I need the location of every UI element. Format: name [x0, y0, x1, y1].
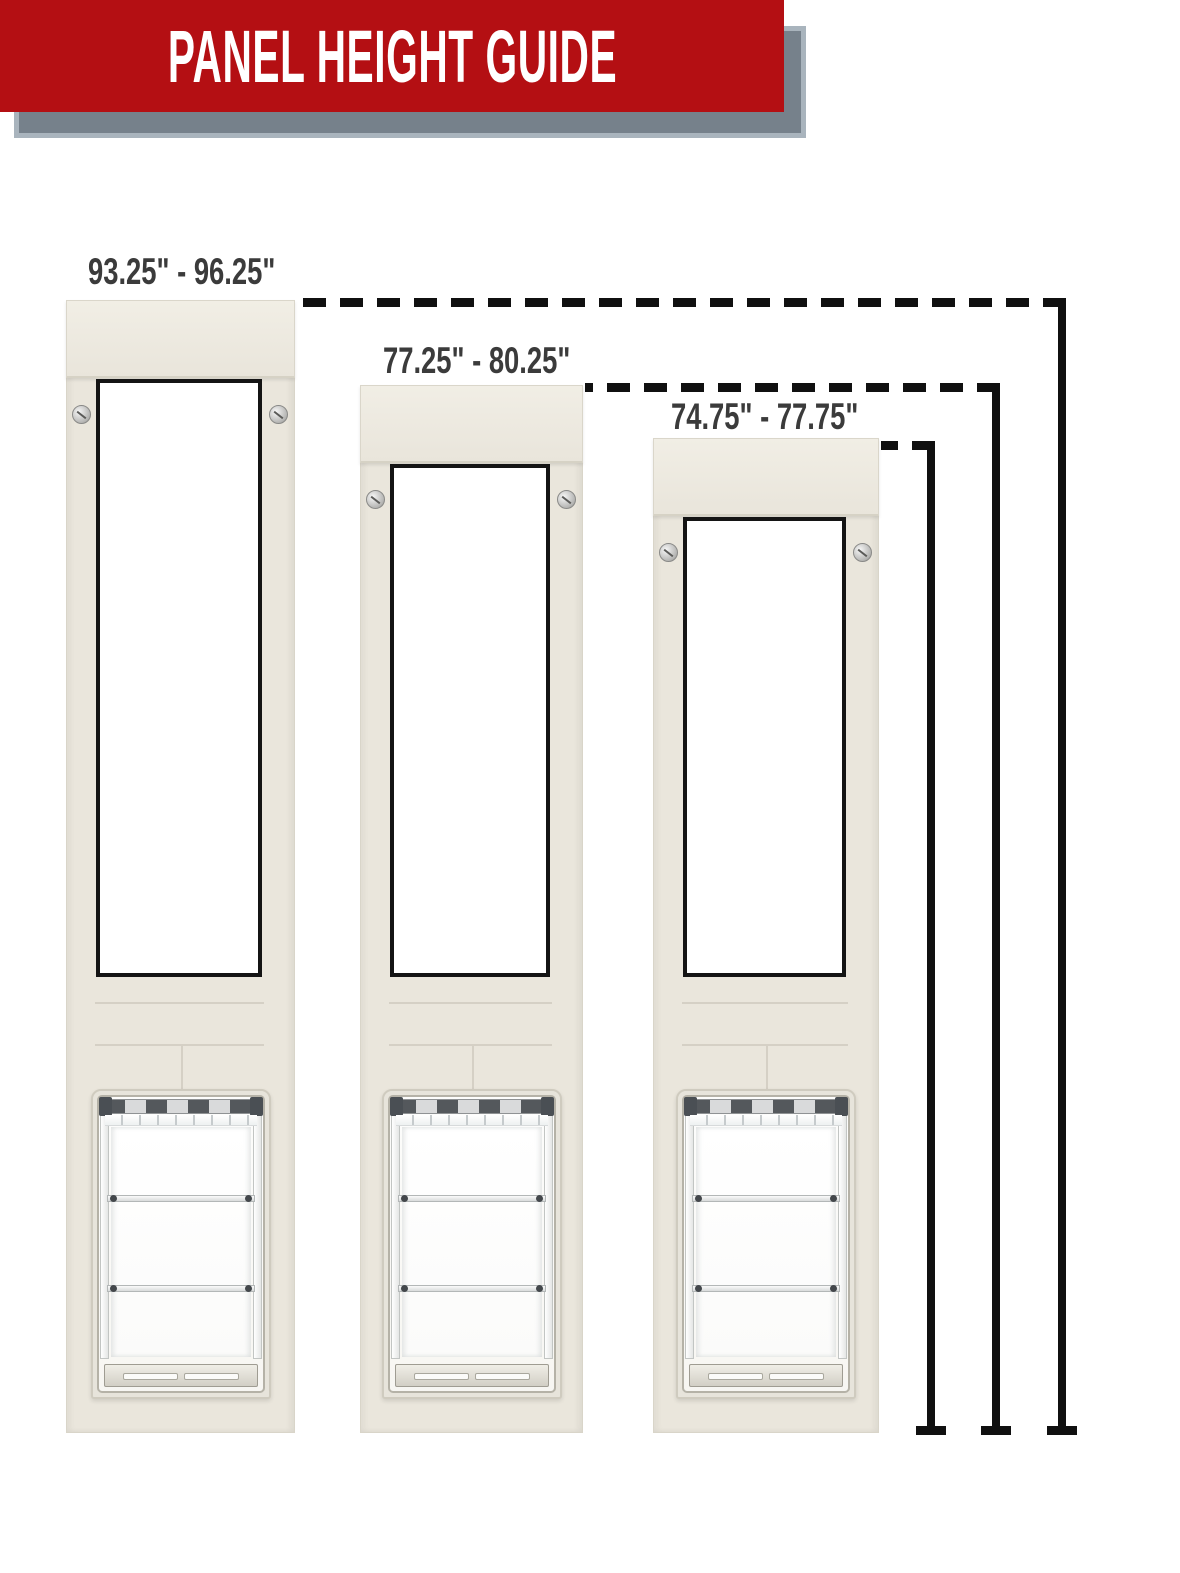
screw-icon: [853, 543, 872, 562]
panel-seam: [181, 1046, 183, 1089]
height-range-label-short: 74.75" - 77.75": [671, 396, 858, 438]
threshold-slot: [123, 1373, 178, 1380]
screw-icon: [557, 490, 576, 509]
panel-seam: [682, 1002, 848, 1004]
flap-hinge-end-cap: [99, 1097, 112, 1116]
screw-icon: [269, 405, 288, 424]
flap-crossbar: [398, 1285, 546, 1292]
title-banner: PANEL HEIGHT GUIDE: [0, 0, 784, 112]
panel-top-cap: [66, 300, 295, 378]
panel-seam: [682, 1044, 848, 1046]
flap-threshold: [689, 1364, 843, 1387]
panel-seam: [766, 1046, 768, 1089]
panel-top-cap: [360, 385, 583, 463]
height-range-label-medium: 77.25" - 80.25": [383, 340, 570, 382]
flap-threshold: [395, 1364, 549, 1387]
extent-line-tall: [1058, 298, 1066, 1435]
flap-crossbar: [692, 1285, 840, 1292]
flap-side-rail: [253, 1099, 262, 1359]
flap-threshold: [104, 1364, 258, 1387]
flap-crossbar: [107, 1285, 255, 1292]
flap-clip-strip: [690, 1115, 842, 1126]
flap-crossbar: [398, 1195, 546, 1202]
threshold-slot: [708, 1373, 763, 1380]
panel-seam: [472, 1046, 474, 1089]
sliding-door-panel-medium: [360, 385, 583, 1433]
height-range-label-tall: 93.25" - 96.25": [88, 251, 275, 293]
flap-hinge-bar: [688, 1099, 844, 1114]
flap-side-rail: [100, 1099, 109, 1359]
flap-crossbar: [107, 1195, 255, 1202]
extent-line-end-cap-medium: [981, 1426, 1011, 1435]
flap-crossbar: [692, 1195, 840, 1202]
flap-hinge-end-cap: [541, 1097, 554, 1116]
flap-door: [696, 1127, 836, 1357]
flap-hinge-end-cap: [835, 1097, 848, 1116]
screw-icon: [72, 405, 91, 424]
threshold-slot: [414, 1373, 469, 1380]
sliding-door-panel-short: [653, 438, 879, 1433]
panel-seam: [389, 1044, 552, 1046]
pet-flap-assembly: [91, 1089, 271, 1399]
glass-window: [96, 379, 262, 977]
panel-seam: [389, 1002, 552, 1004]
flap-side-rail: [391, 1099, 400, 1359]
sliding-door-panel-tall: [66, 300, 295, 1433]
screw-icon: [659, 543, 678, 562]
glass-window: [390, 464, 550, 977]
flap-door: [402, 1127, 542, 1357]
flap-clip-strip: [396, 1115, 548, 1126]
threshold-slot: [769, 1373, 824, 1380]
pet-flap-assembly: [676, 1089, 856, 1399]
flap-hinge-bar: [103, 1099, 259, 1114]
flap-side-rail: [685, 1099, 694, 1359]
panel-top-cap: [653, 438, 879, 516]
flap-side-rail: [838, 1099, 847, 1359]
extent-line-medium: [992, 383, 1000, 1435]
flap-hinge-bar: [394, 1099, 550, 1114]
extent-line-end-cap-short: [916, 1426, 946, 1435]
extent-line-short: [927, 441, 935, 1435]
flap-hinge-end-cap: [684, 1097, 697, 1116]
extent-line-end-cap-tall: [1047, 1426, 1077, 1435]
page-title: PANEL HEIGHT GUIDE: [167, 14, 616, 99]
flap-hinge-end-cap: [250, 1097, 263, 1116]
dashed-leader-line-tall: [297, 298, 1066, 307]
screw-icon: [366, 490, 385, 509]
pet-flap-assembly: [382, 1089, 562, 1399]
panel-seam: [95, 1002, 264, 1004]
threshold-slot: [475, 1373, 530, 1380]
panel-height-guide: PANEL HEIGHT GUIDE 93.25" - 96.25" 77.25…: [0, 0, 1180, 1573]
panel-seam: [95, 1044, 264, 1046]
flap-door: [111, 1127, 251, 1357]
flap-hinge-end-cap: [390, 1097, 403, 1116]
glass-window: [683, 517, 846, 977]
threshold-slot: [184, 1373, 239, 1380]
dashed-leader-line-medium: [585, 383, 1000, 392]
flap-side-rail: [544, 1099, 553, 1359]
flap-clip-strip: [105, 1115, 257, 1126]
